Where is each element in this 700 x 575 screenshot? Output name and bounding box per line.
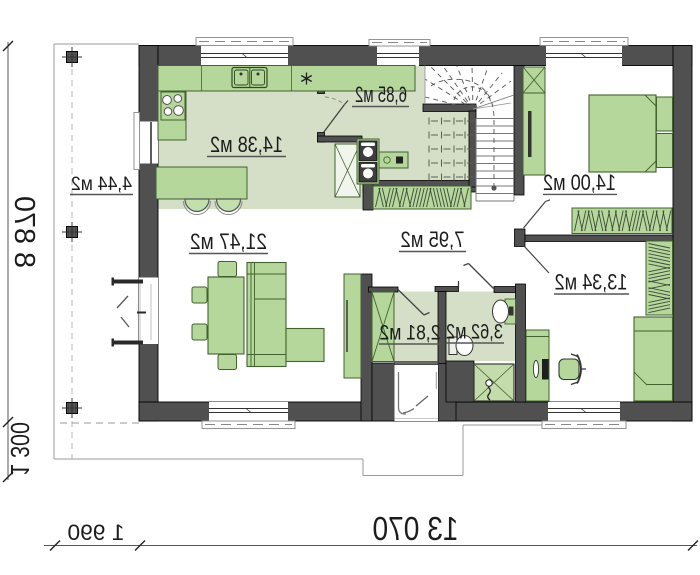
svg-text:7,95 м2: 7,95 м2 <box>401 227 465 252</box>
svg-text:14,00 м2: 14,00 м2 <box>543 170 616 195</box>
svg-text:13 070: 13 070 <box>373 510 459 547</box>
svg-text:1 990: 1 990 <box>68 520 125 545</box>
svg-text:21,47 м2: 21,47 м2 <box>190 229 267 254</box>
svg-text:4,44 м2: 4,44 м2 <box>71 174 132 195</box>
svg-text:14,38 м2: 14,38 м2 <box>210 132 283 157</box>
svg-text:3,62 м2: 3,62 м2 <box>446 321 503 344</box>
svg-text:1 300: 1 300 <box>5 422 35 476</box>
svg-text:2,81 м2: 2,81 м2 <box>380 322 441 345</box>
svg-text:8 870: 8 870 <box>8 196 40 268</box>
svg-text:13,34 м2: 13,34 м2 <box>555 270 628 295</box>
svg-text:6,85 м2: 6,85 м2 <box>355 82 407 107</box>
